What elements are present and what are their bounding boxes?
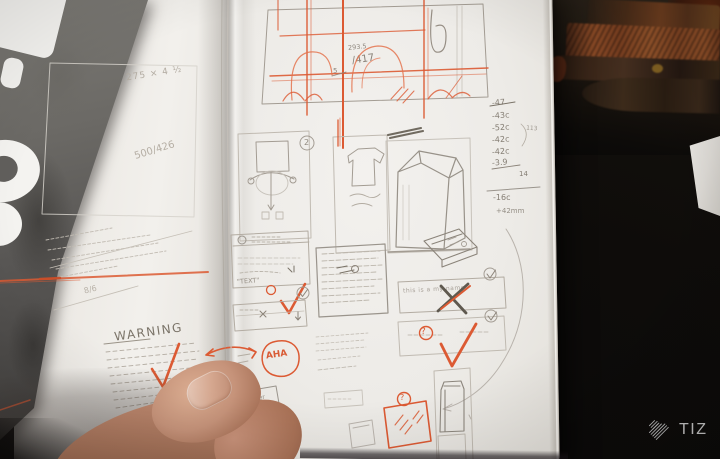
cover-letter-hole <box>0 154 19 184</box>
tiz-logo-text: TIZ <box>679 421 708 439</box>
tiz-logo-icon <box>646 418 670 442</box>
rust-layer <box>582 76 720 114</box>
tiz-watermark: TIZ <box>646 415 716 445</box>
rust-detail <box>652 64 663 73</box>
cover-letter <box>0 56 25 90</box>
photo-scene: 275 × 4 ½ 500/426 8/6 293.5 /417 5 -47 -… <box>0 0 720 459</box>
